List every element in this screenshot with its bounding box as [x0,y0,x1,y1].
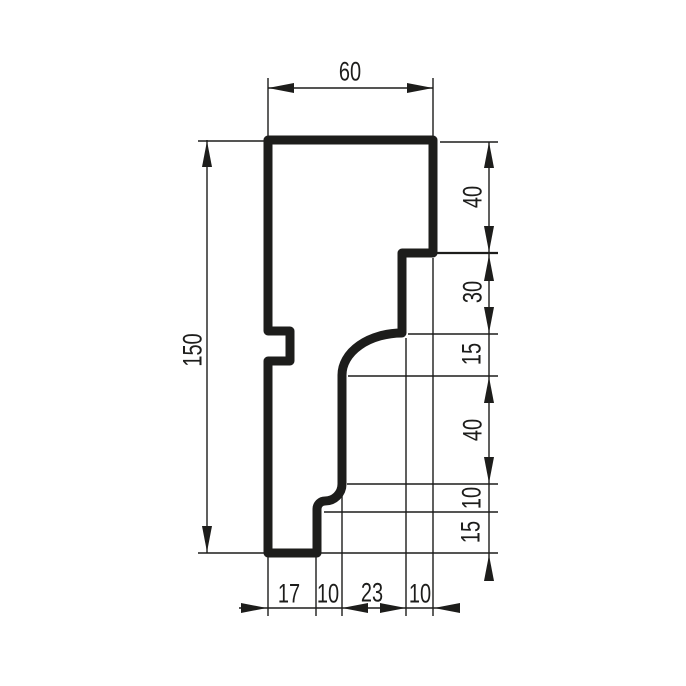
arrowhead [434,603,460,613]
arrowhead [484,226,494,252]
arrowhead [484,307,494,333]
arrowhead [202,526,212,552]
dim-label-right-40b: 40 [458,419,489,441]
arrowhead [202,141,212,167]
arrowhead [380,603,406,613]
dim-label-right-15a: 15 [457,343,488,365]
arrowhead [407,83,433,93]
arrowhead [484,555,494,581]
dim-label-right-10: 10 [457,487,488,509]
dim-label-right-30: 30 [458,281,489,303]
profile-outline [268,140,433,553]
arrowhead [268,83,294,93]
dim-label-bottom-10a: 10 [317,579,339,610]
arrowhead [484,377,494,403]
dim-label-right-40a: 40 [458,186,489,208]
dim-label-bottom-10b: 10 [409,579,431,610]
profile-drawing: 60 150 40 30 15 40 10 15 17 10 23 10 [0,0,686,686]
dim-label-bottom-17: 17 [278,579,300,610]
arrowhead [484,142,494,168]
drawing-page: 60 150 40 30 15 40 10 15 17 10 23 10 [0,0,686,686]
dim-label-left-height: 150 [178,333,209,366]
arrowhead [484,457,494,483]
dim-label-top-width: 60 [339,57,361,88]
dim-label-bottom-23: 23 [361,578,383,609]
dim-label-right-15b: 15 [456,521,487,543]
arrowhead [241,603,267,613]
arrowhead [484,255,494,281]
